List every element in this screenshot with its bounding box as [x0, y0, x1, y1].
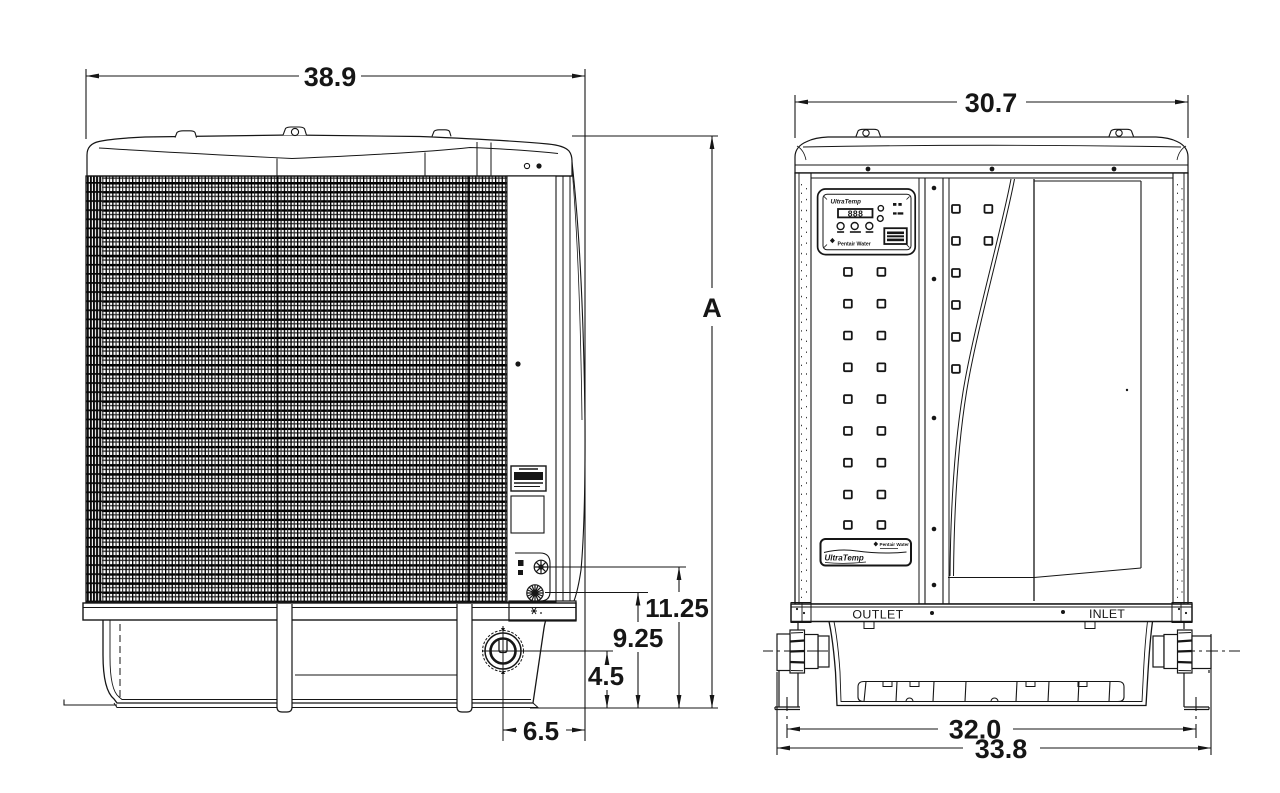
svg-text:11.25: 11.25 — [645, 593, 709, 623]
svg-text:OUTLET: OUTLET — [852, 608, 903, 622]
svg-text:UltraTemp: UltraTemp — [831, 199, 862, 206]
svg-text:9.25: 9.25 — [613, 623, 664, 653]
svg-text:33.8: 33.8 — [975, 734, 1028, 764]
svg-text:30.7: 30.7 — [965, 88, 1018, 118]
svg-text:38.9: 38.9 — [304, 62, 357, 92]
svg-text:Pentair Water: Pentair Water — [838, 242, 871, 248]
svg-text:INLET: INLET — [1089, 607, 1125, 621]
svg-text:UltraTemp: UltraTemp — [825, 554, 864, 563]
svg-text:6.5: 6.5 — [523, 716, 559, 746]
svg-text:Pentair Water: Pentair Water — [880, 542, 910, 547]
svg-text:4.5: 4.5 — [588, 661, 624, 691]
svg-text:A: A — [702, 293, 722, 323]
svg-text:888: 888 — [848, 208, 864, 218]
